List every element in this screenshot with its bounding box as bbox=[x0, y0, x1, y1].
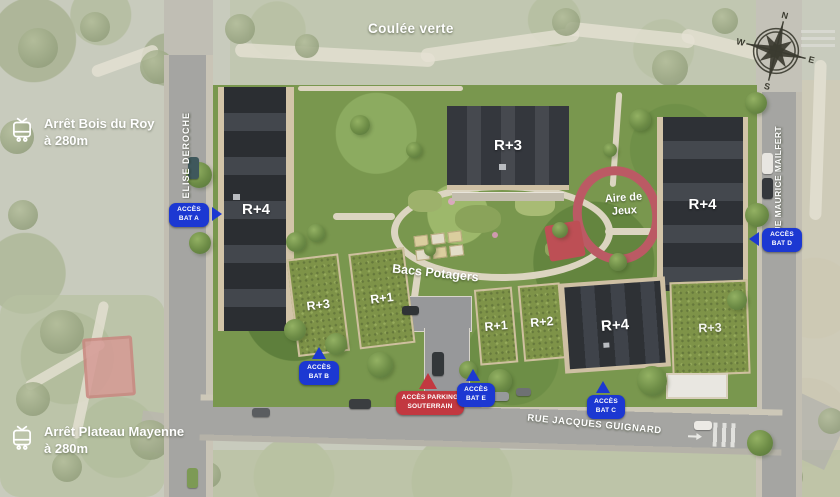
access-arrow-bat-b bbox=[312, 347, 326, 359]
access-arrow-bat-d bbox=[749, 232, 759, 246]
access-badge-bat-d: ACCÈS BAT D bbox=[762, 228, 802, 252]
tree bbox=[609, 253, 627, 271]
access-badge-parking: ACCÈS PARKING SOUTERRAIN bbox=[396, 391, 464, 415]
south-field bbox=[165, 450, 840, 497]
tree bbox=[284, 319, 306, 341]
bus-stop-distance: à 280m bbox=[44, 441, 184, 458]
building-floor-label: R+4 bbox=[689, 196, 717, 213]
compass-west-label: W bbox=[735, 36, 746, 48]
access-line2: SOUTERRAIN bbox=[400, 403, 460, 412]
bus-stop-name: Arrêt Plateau Mayenne bbox=[44, 424, 184, 441]
compass-east-label: E bbox=[807, 54, 815, 65]
building-south-center-group: R+1 R+2 bbox=[474, 282, 566, 365]
access-line1: ACCÈS bbox=[461, 386, 491, 395]
car bbox=[762, 153, 773, 174]
building-north-center: R+3 bbox=[447, 106, 569, 190]
bus-icon bbox=[8, 116, 36, 142]
garden-bed bbox=[455, 205, 501, 233]
building-terrace bbox=[452, 192, 564, 201]
access-arrow-bat-e bbox=[466, 369, 480, 381]
access-line1: ACCÈS bbox=[303, 364, 335, 373]
car bbox=[252, 408, 270, 417]
access-line1: ACCÈS bbox=[766, 231, 798, 240]
building-west: R+4 bbox=[218, 87, 294, 331]
site-plan-map: R+4 R+3 R+4 R+3 R+1 R+1 R+2 R+4 R+3 bbox=[0, 0, 840, 497]
tree bbox=[637, 366, 667, 396]
compass-south-label: S bbox=[763, 81, 771, 92]
car bbox=[516, 388, 531, 396]
tree bbox=[745, 92, 767, 114]
access-arrow-parking bbox=[419, 373, 437, 389]
tree bbox=[40, 310, 84, 354]
access-line2: BAT A bbox=[173, 215, 205, 224]
access-line2: BAT E bbox=[461, 395, 491, 404]
access-line2: BAT D bbox=[766, 240, 798, 249]
access-arrow-bat-c bbox=[596, 381, 610, 393]
building-south-center-left: R+1 bbox=[474, 287, 518, 366]
tree bbox=[745, 203, 769, 227]
tree bbox=[552, 222, 568, 238]
building-floor-label: R+3 bbox=[698, 321, 722, 336]
access-line2: BAT B bbox=[303, 373, 335, 382]
building-floor-label: R+1 bbox=[484, 318, 508, 334]
tree bbox=[295, 34, 319, 58]
access-badge-bat-a: ACCÈS BAT A bbox=[169, 203, 209, 227]
bus-stop-distance: à 280m bbox=[44, 133, 155, 150]
building-east: R+4 bbox=[657, 117, 748, 291]
tree bbox=[367, 352, 393, 378]
tree bbox=[552, 8, 580, 36]
playground-label: Aire de Jeux bbox=[591, 190, 657, 221]
building-south: R+4 bbox=[559, 276, 671, 373]
tree bbox=[727, 290, 747, 310]
tree bbox=[18, 28, 58, 68]
roof-vent bbox=[233, 194, 240, 200]
building-floor-label: R+4 bbox=[600, 316, 629, 335]
tree bbox=[307, 224, 325, 242]
tree bbox=[424, 244, 436, 256]
building-floor-label: R+3 bbox=[306, 297, 331, 314]
car bbox=[402, 306, 419, 315]
car bbox=[187, 468, 198, 488]
tree bbox=[818, 408, 840, 434]
access-line1: ACCÈS bbox=[591, 398, 621, 407]
building-floor-label: R+2 bbox=[530, 314, 554, 330]
tree bbox=[8, 200, 38, 230]
planter-box bbox=[447, 230, 462, 243]
tree bbox=[747, 430, 773, 456]
path-top bbox=[298, 86, 463, 91]
access-arrow-bat-a bbox=[212, 207, 222, 221]
street-name-east: RUE MAURICE MAILFERT bbox=[773, 126, 783, 239]
access-line2: BAT C bbox=[591, 407, 621, 416]
tree bbox=[629, 109, 651, 131]
bus-stop-north: Arrêt Bois du Roy à 280m bbox=[8, 116, 155, 150]
building-floor-label: R+4 bbox=[242, 201, 270, 218]
building-floor-label: R+3 bbox=[494, 137, 522, 154]
tree bbox=[603, 143, 617, 157]
planter-box bbox=[449, 244, 464, 257]
bus-stop-south: Arrêt Plateau Mayenne à 280m bbox=[8, 424, 184, 458]
bus-icon bbox=[8, 424, 36, 450]
bus-stop-name: Arrêt Bois du Roy bbox=[44, 116, 155, 133]
tree bbox=[189, 232, 211, 254]
car bbox=[762, 178, 773, 199]
road-stub-north bbox=[164, 0, 213, 58]
roof-vent bbox=[499, 164, 506, 170]
car bbox=[694, 421, 712, 430]
crosswalk bbox=[713, 423, 740, 448]
access-line1: ACCÈS PARKING bbox=[400, 394, 460, 403]
tree bbox=[286, 232, 306, 252]
tree bbox=[80, 12, 110, 42]
building-floor-label: R+1 bbox=[369, 290, 394, 307]
access-line1: ACCÈS bbox=[173, 206, 205, 215]
tree bbox=[350, 115, 370, 135]
tree bbox=[225, 14, 255, 44]
tree bbox=[16, 382, 50, 416]
access-badge-bat-e: ACCÈS BAT E bbox=[457, 383, 495, 407]
flower-bed bbox=[492, 232, 498, 238]
access-badge-bat-c: ACCÈS BAT C bbox=[587, 395, 625, 419]
path-spur-west bbox=[333, 213, 395, 220]
tree bbox=[325, 333, 347, 355]
building-white bbox=[666, 373, 728, 399]
compass-north-label: N bbox=[780, 10, 789, 21]
car bbox=[349, 399, 371, 409]
garden-bed bbox=[408, 190, 442, 212]
planter-box bbox=[430, 232, 445, 245]
tree bbox=[406, 142, 422, 158]
green-corridor-label: Coulée verte bbox=[368, 21, 454, 36]
access-badge-bat-b: ACCÈS BAT B bbox=[299, 361, 339, 385]
playground-court bbox=[82, 335, 136, 398]
tree bbox=[712, 8, 738, 34]
tree bbox=[652, 50, 688, 86]
roof-vent bbox=[603, 342, 609, 347]
